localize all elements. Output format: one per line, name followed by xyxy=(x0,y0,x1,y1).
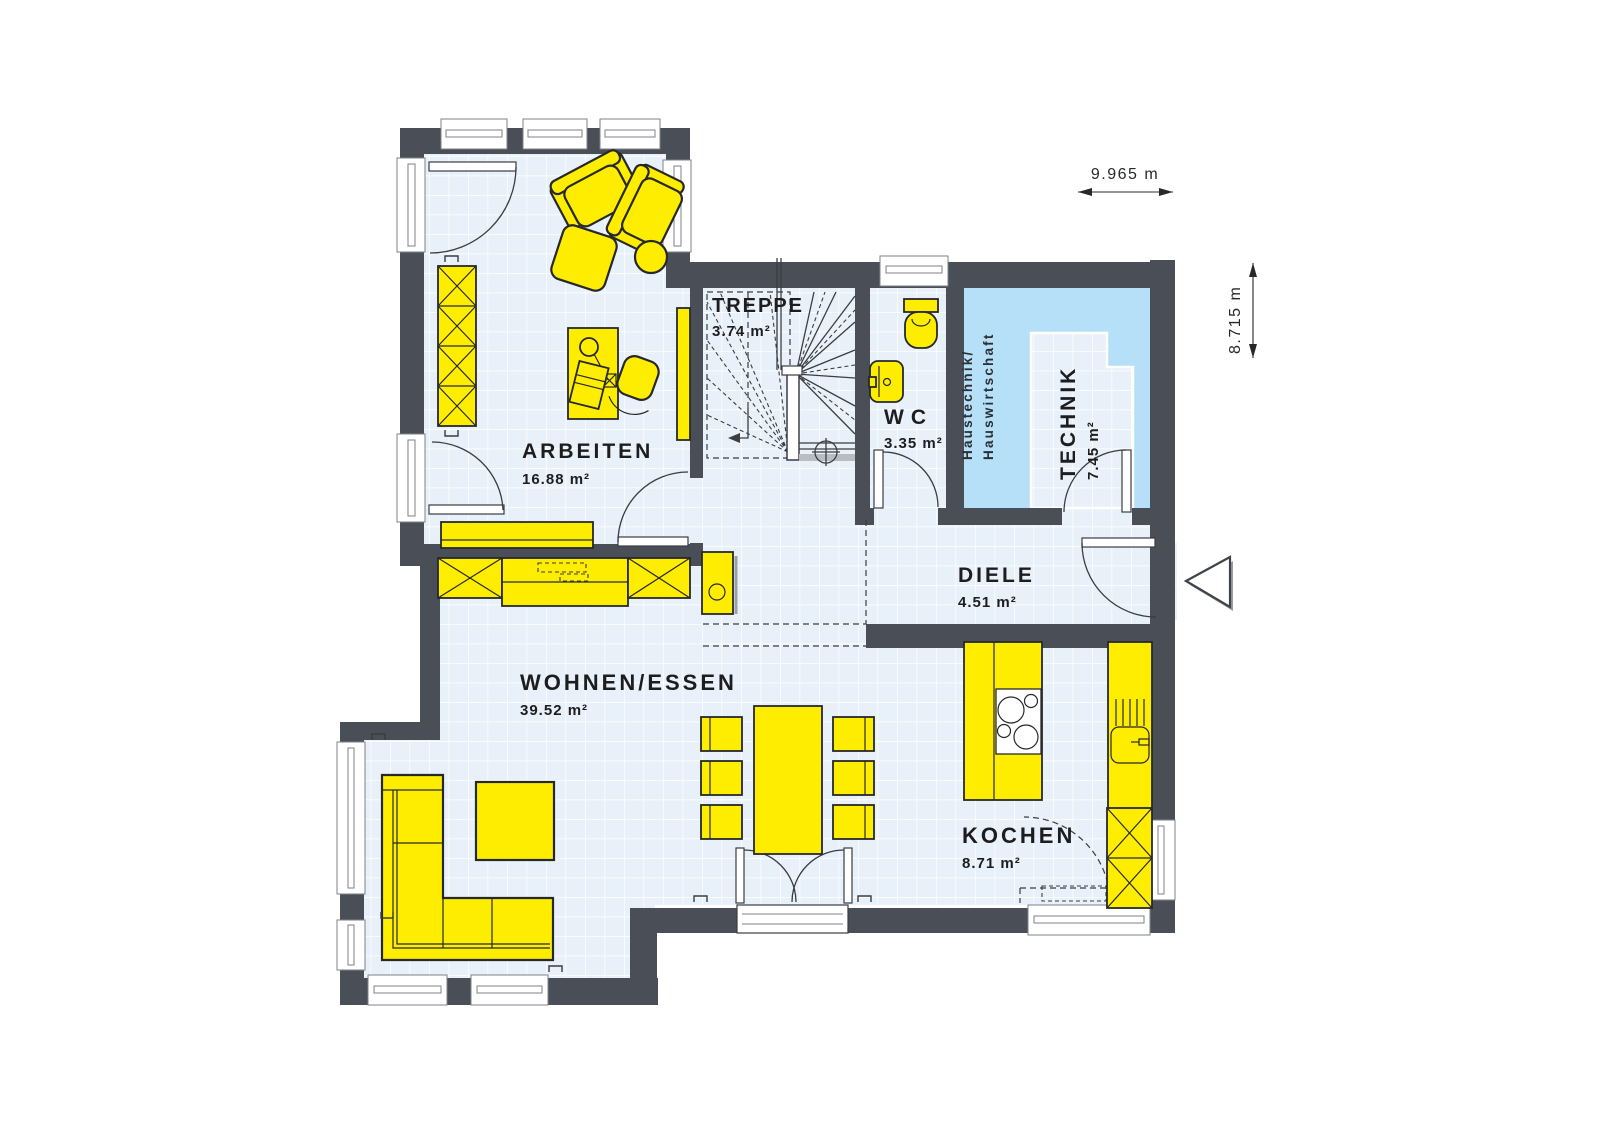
wall-unit xyxy=(438,558,690,606)
kitchen-island xyxy=(964,642,1042,800)
floorplan-canvas: ARBEITEN 16.88 m² TREPPE 3.74 m² WC 3.35… xyxy=(0,0,1600,1132)
stair-spine xyxy=(787,370,799,460)
room-area-treppe: 3.74 m² xyxy=(712,323,771,340)
room-label-wohnen: WOHNEN/ESSEN xyxy=(520,670,737,695)
dining-table xyxy=(754,706,822,854)
window-arbeiten-left-upper xyxy=(397,158,425,252)
dining-set xyxy=(701,706,874,854)
room-area-kochen: 8.71 m² xyxy=(962,855,1021,872)
zone-label-line1: Haustechnik/ xyxy=(960,350,975,460)
window-wohnen-bottom-a xyxy=(368,975,447,1005)
window-wohnen-left-b xyxy=(337,920,365,970)
dining-chair xyxy=(701,761,742,795)
dining-chair xyxy=(701,717,742,751)
dining-chair xyxy=(833,761,874,795)
side-table xyxy=(635,241,667,273)
window-wohnen-left-a xyxy=(337,742,365,894)
wardrobe xyxy=(438,266,476,426)
floorplan-drawing: ARBEITEN 16.88 m² TREPPE 3.74 m² WC 3.35… xyxy=(0,0,1600,1132)
bookshelf xyxy=(677,308,690,440)
dimension-width-value: 9.965 m xyxy=(1091,166,1159,183)
room-area-diele: 4.51 m² xyxy=(958,594,1017,611)
toilet xyxy=(904,299,938,348)
dimension-height-value: 8.715 m xyxy=(1227,286,1244,354)
dining-chair xyxy=(833,717,874,751)
desk xyxy=(568,328,618,419)
washbasin xyxy=(869,361,903,402)
room-label-arbeiten: ARBEITEN xyxy=(522,440,653,463)
kitchen-counter xyxy=(1108,642,1152,810)
room-area-technik: 7.45 m² xyxy=(1085,421,1102,480)
window-wohnen-bottom-b xyxy=(471,975,548,1005)
room-area-arbeiten: 16.88 m² xyxy=(522,471,590,488)
window-arbeiten-top-1 xyxy=(441,119,507,149)
sideboard xyxy=(441,522,593,548)
window-kochen-bottom xyxy=(1028,905,1150,935)
room-area-wc: 3.35 m² xyxy=(884,435,943,452)
dimension-height: 8.715 m xyxy=(1227,263,1257,358)
dining-chair xyxy=(833,805,874,839)
window-wc-top xyxy=(880,256,948,286)
room-label-technik: TECHNIK xyxy=(1057,366,1080,480)
tall-cabinet xyxy=(1107,808,1152,908)
dimension-width: 9.965 m xyxy=(1078,166,1173,196)
room-area-wohnen: 39.52 m² xyxy=(520,702,588,719)
fireplace xyxy=(702,552,736,614)
room-label-diele: DIELE xyxy=(958,564,1035,587)
zone-label-line2: Hauswirtschaft xyxy=(981,332,996,460)
dining-chair xyxy=(701,805,742,839)
entrance-arrow xyxy=(1186,557,1233,611)
window-arbeiten-top-2 xyxy=(523,119,587,149)
window-arbeiten-left-lower xyxy=(397,434,425,522)
window-arbeiten-top-3 xyxy=(600,119,660,149)
room-label-kochen: KOCHEN xyxy=(962,823,1075,848)
coffee-table xyxy=(476,782,554,860)
room-label-treppe: TREPPE xyxy=(712,295,804,317)
room-label-wc: WC xyxy=(884,406,933,429)
stair-landing-edge xyxy=(799,454,855,461)
